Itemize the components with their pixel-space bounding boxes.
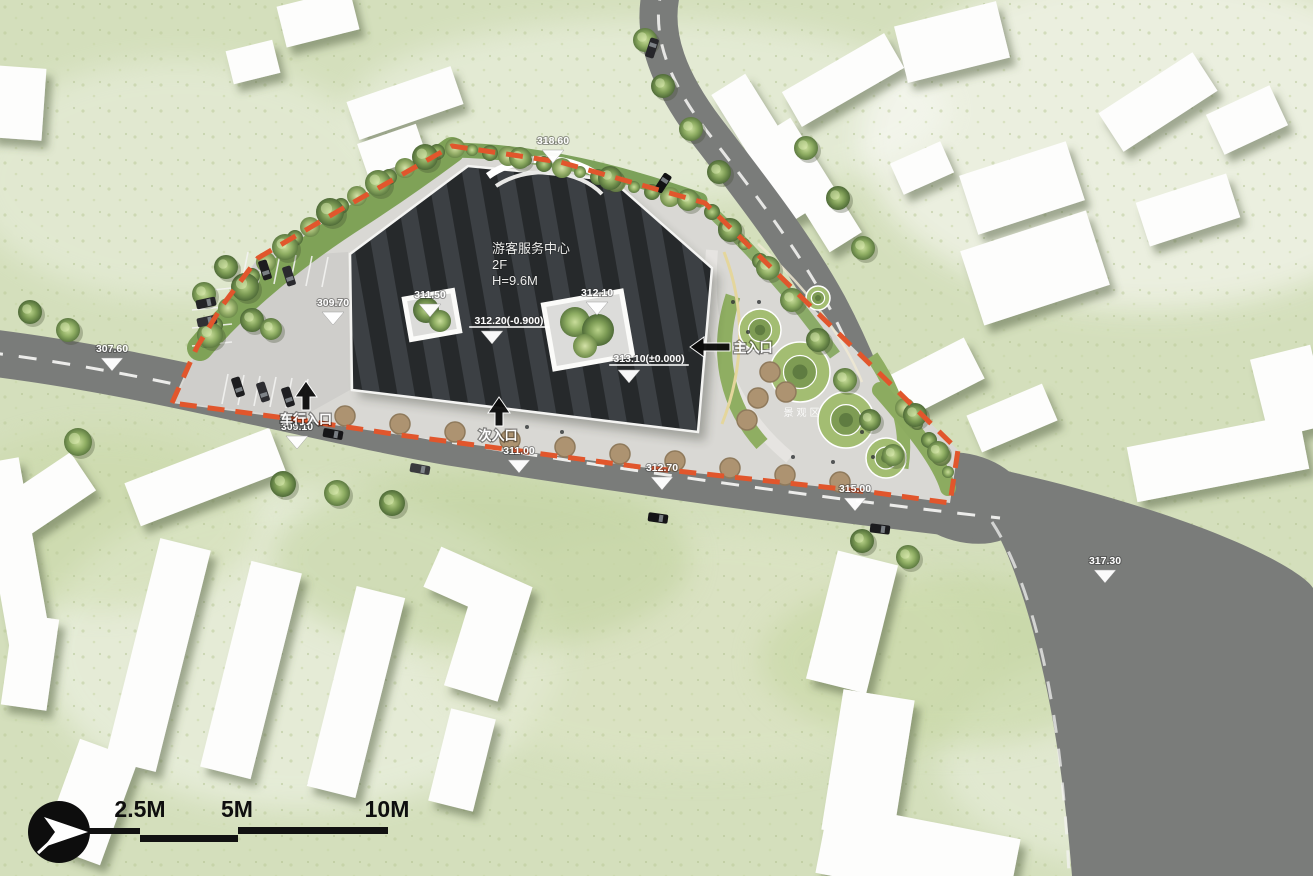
scale-bar-segment [88,828,140,834]
person-dot [746,330,750,334]
scale-bar-segment [140,835,238,842]
tree-pit [555,437,575,457]
scale-label: 2.5M [114,796,165,822]
shrub [942,466,954,478]
person-dot [525,425,529,429]
person-dot [831,460,835,464]
elevation-value: 313.10(±0.000) [613,353,684,365]
scale-label: 5M [221,796,253,822]
tree-pit [335,406,355,426]
shrub [466,144,478,156]
garden-area-label: 景观区 [784,407,823,419]
building-height-label: H=9.6M [492,273,538,288]
tree-pit [748,388,768,408]
elevation-value: 312.10 [581,287,613,299]
context-building [0,65,46,140]
tree-pit [390,414,410,434]
person-dot [731,300,735,304]
north-arrow-icon [28,801,90,863]
person-dot [871,455,875,459]
person-dot [757,300,761,304]
tree-pit [776,382,796,402]
building-name-label: 游客服务中心 [492,241,570,256]
person-dot [791,455,795,459]
tree-pit [737,410,757,430]
tree-pit [760,362,780,382]
elevation-value: 318.60 [537,135,569,147]
tree-pit [445,422,465,442]
elevation-value: 312.20(-0.900) [475,315,544,327]
vehicle-entrance-label: 车行入口 [280,412,332,427]
site-plan-image: 游客服务中心 2F H=9.6M 景观区 318.60307.60309.703… [0,0,1313,876]
scale-bar-segment [238,827,388,834]
elevation-value: 307.60 [96,343,128,355]
building-floors-label: 2F [492,257,507,272]
elevation-value: 317.30 [1089,555,1121,567]
elevation-value: 315.00 [839,483,871,495]
scale-label: 10M [365,796,410,822]
elevation-value: 312.70 [646,462,678,474]
elevation-value: 311.00 [503,445,535,457]
secondary-entrance-label: 次入口 [478,428,517,443]
elevation-value: 309.70 [317,297,349,309]
person-dot [560,430,564,434]
main-entrance-label: 主入口 [733,340,772,355]
person-dot [860,430,864,434]
elevation-value: 311.50 [414,289,446,301]
site-plan-canvas: 游客服务中心 2F H=9.6M 景观区 318.60307.60309.703… [0,0,1313,876]
